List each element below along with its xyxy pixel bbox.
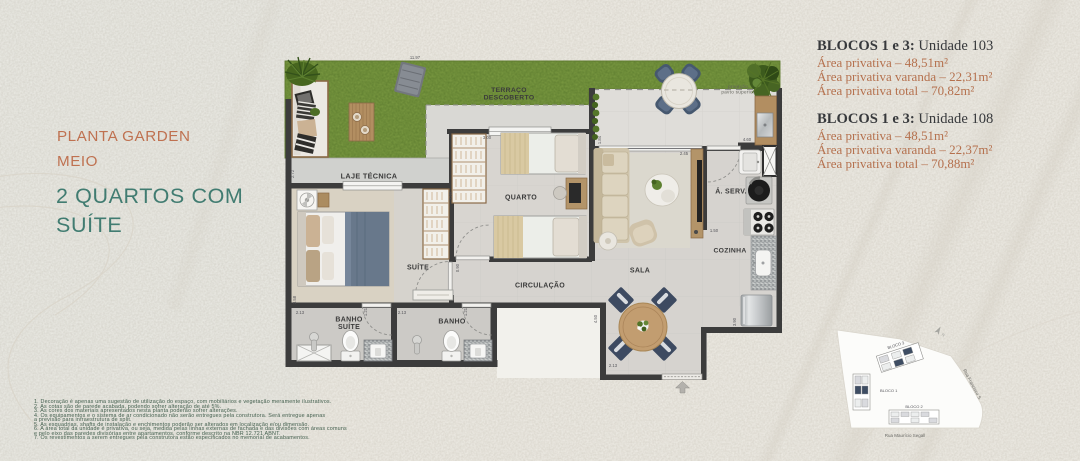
svg-text:DESCOBERTO: DESCOBERTO [484,95,535,102]
svg-text:SUÍTE: SUÍTE [407,263,429,272]
svg-text:1.84: 1.84 [597,135,602,144]
svg-text:BLOCO 2: BLOCO 2 [905,404,923,409]
svg-text:0.90: 0.90 [455,263,460,272]
svg-text:2.72: 2.72 [290,169,295,178]
svg-text:QUARTO: QUARTO [505,195,537,202]
svg-text:Rua Maurício Segall: Rua Maurício Segall [885,433,926,438]
svg-text:2.13: 2.13 [398,310,407,315]
svg-text:SALA: SALA [630,268,650,275]
svg-text:BLOCO 1: BLOCO 1 [880,388,898,393]
svg-text:BANHO: BANHO [335,317,362,324]
svg-text:COZINHA: COZINHA [713,248,746,255]
svg-text:2.13: 2.13 [609,363,618,368]
svg-text:BANHO: BANHO [438,319,465,326]
svg-text:4.60: 4.60 [743,137,752,142]
svg-text:1.21: 1.21 [463,307,468,316]
svg-text:2.13: 2.13 [296,310,305,315]
svg-text:pavto superior: pavto superior [721,90,754,95]
svg-text:3.90: 3.90 [732,317,737,326]
svg-text:projeção: projeção [728,84,748,89]
svg-text:2.45: 2.45 [680,151,689,156]
svg-text:1.50: 1.50 [710,228,719,233]
svg-text:Á. SERV.: Á. SERV. [715,187,747,196]
svg-text:CIRCULAÇÃO: CIRCULAÇÃO [515,281,565,290]
svg-text:11.97: 11.97 [410,55,421,60]
svg-text:3.58: 3.58 [292,295,297,304]
svg-text:3.00: 3.00 [483,135,492,140]
svg-text:4.50: 4.50 [593,314,598,323]
svg-text:TERRAÇO: TERRAÇO [491,87,527,94]
svg-text:LAJE TÉCNICA: LAJE TÉCNICA [341,172,398,181]
svg-text:2.50: 2.50 [448,191,453,200]
svg-text:SUÍTE: SUÍTE [338,322,360,331]
svg-text:1.21: 1.21 [363,307,368,316]
